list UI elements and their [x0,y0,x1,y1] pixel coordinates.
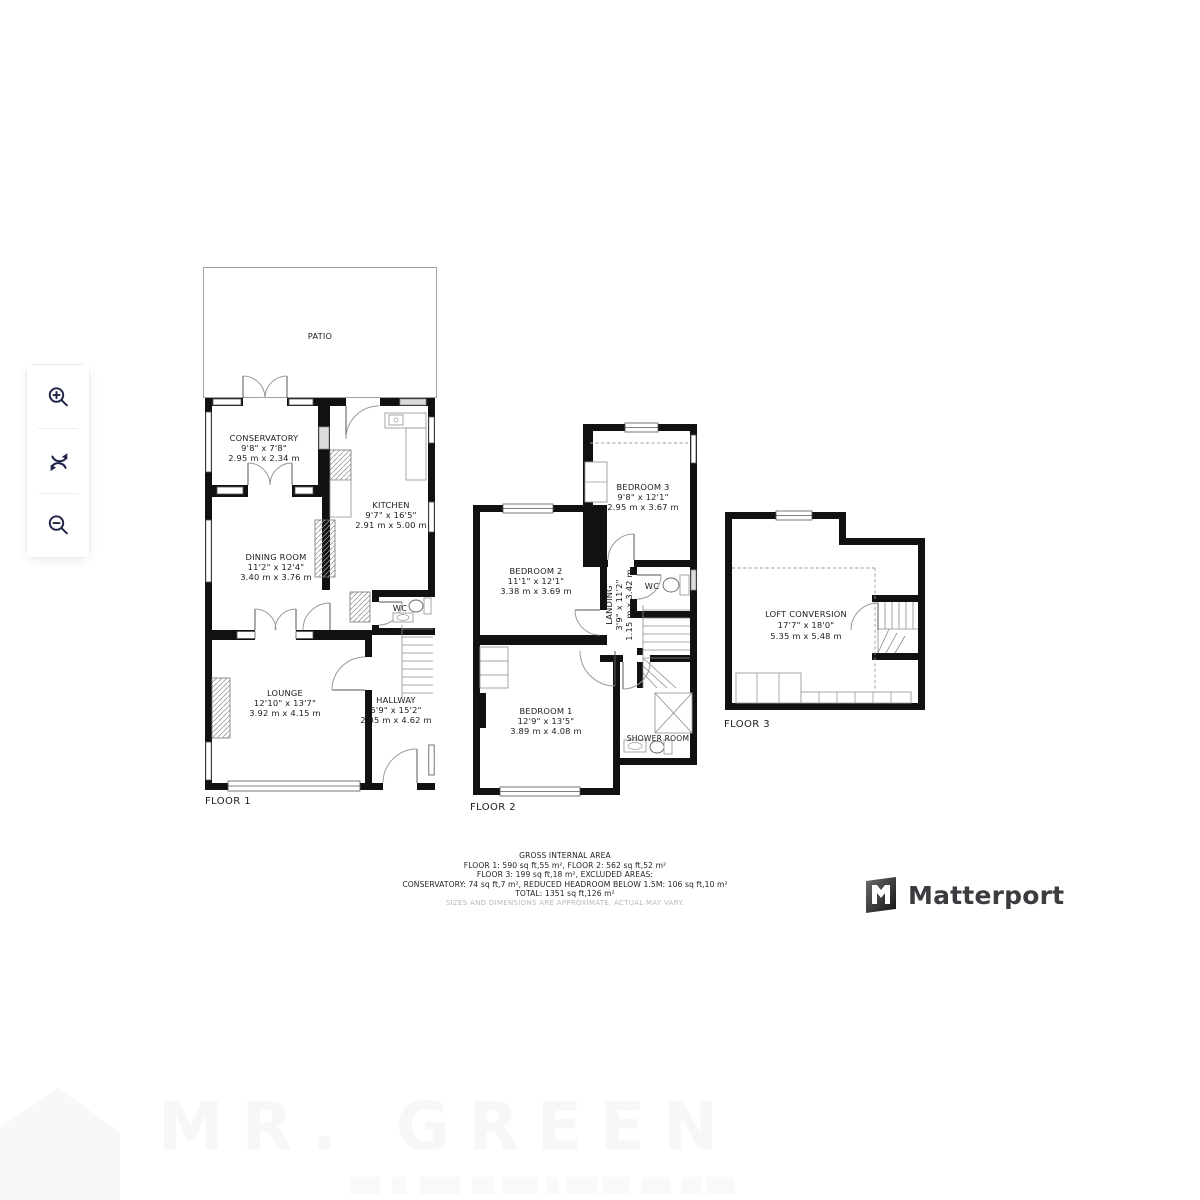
svg-text:9'8" x 12'1": 9'8" x 12'1" [617,492,668,502]
svg-text:BEDROOM 3: BEDROOM 3 [616,482,669,492]
floor-plan-2: BEDROOM 3 9'8" x 12'1" 2.95 m x 3.67 m B… [471,420,700,802]
svg-text:1.15 m x 3.42 m: 1.15 m x 3.42 m [624,569,634,641]
svg-text:2.91 m x 5.00 m: 2.91 m x 5.00 m [355,520,427,530]
svg-text:11'2" x 12'4": 11'2" x 12'4" [248,562,305,572]
svg-text:CONSERVATORY: CONSERVATORY [230,433,300,443]
summary-line-3: CONSERVATORY: 74 sq ft,7 m², REDUCED HEA… [340,880,790,890]
svg-text:DINING ROOM: DINING ROOM [246,552,307,562]
svg-text:3.40 m x 3.76 m: 3.40 m x 3.76 m [240,572,312,582]
svg-text:LOFT CONVERSION: LOFT CONVERSION [765,609,847,619]
svg-text:3.92 m x 4.15 m: 3.92 m x 4.15 m [249,708,321,718]
svg-text:SHOWER ROOM: SHOWER ROOM [627,734,690,743]
floor-3-label: FLOOR 3 [724,719,770,730]
summary-title: GROSS INTERNAL AREA [340,851,790,861]
svg-text:LOUNGE: LOUNGE [267,688,303,698]
svg-text:12'9" x 13'5": 12'9" x 13'5" [518,716,575,726]
floor-2-label: FLOOR 2 [470,802,516,813]
zoom-in-button[interactable] [27,365,89,428]
zoom-controls [26,364,90,558]
floor-plan-3: LOFT CONVERSION 17'7" x 18'0" 5.35 m x 5… [723,505,928,717]
svg-text:WC: WC [645,581,659,591]
room-labels: LOFT CONVERSION 17'7" x 18'0" 5.35 m x 5… [765,609,847,641]
svg-text:17'7" x 18'0": 17'7" x 18'0" [778,620,835,630]
summary-disclaimer: SIZES AND DIMENSIONS ARE APPROXIMATE, AC… [340,899,790,909]
floor-plan-1: PATIO [203,267,439,794]
room-label: PATIO [308,331,333,341]
svg-text:HALLWAY: HALLWAY [376,695,416,705]
svg-text:9'7" x 16'5": 9'7" x 16'5" [365,510,416,520]
zoom-out-button[interactable] [27,494,89,557]
summary-line-2: FLOOR 3: 199 sq ft,18 m², EXCLUDED AREAS… [340,870,790,880]
svg-text:WC: WC [393,603,407,613]
zoom-in-icon [45,384,71,410]
floor-1-label: FLOOR 1 [205,796,251,807]
svg-text:BEDROOM 1: BEDROOM 1 [519,706,572,716]
svg-text:2.95 m x 2.34 m: 2.95 m x 2.34 m [228,453,300,463]
zoom-out-icon [45,512,71,538]
summary-line-1: FLOOR 1: 590 sq ft,55 m², FLOOR 2: 562 s… [340,861,790,871]
rotate-button[interactable] [27,429,89,492]
svg-text:KITCHEN: KITCHEN [372,500,409,510]
matterport-logo: Matterport [863,876,1064,914]
rotate-icon [45,448,71,474]
svg-text:LANDING: LANDING [604,585,614,625]
svg-text:2.05 m x 4.62 m: 2.05 m x 4.62 m [360,715,432,725]
svg-text:BEDROOM 2: BEDROOM 2 [509,566,562,576]
floorplan-page: MR. GREEN [0,0,1200,1200]
matterport-wordmark: Matterport [908,881,1064,910]
matterport-mark-icon [863,876,899,914]
svg-text:9'8" x 7'8": 9'8" x 7'8" [241,443,287,453]
svg-text:3.38 m x 3.69 m: 3.38 m x 3.69 m [500,586,572,596]
patio-area: PATIO [204,268,437,398]
svg-text:12'10" x 13'7": 12'10" x 13'7" [254,698,316,708]
watermark-house-logo [0,1085,130,1200]
svg-text:3'9" x 11'2": 3'9" x 11'2" [614,579,624,630]
area-summary: GROSS INTERNAL AREA FLOOR 1: 590 sq ft,5… [340,851,790,909]
svg-text:6'9" x 15'2": 6'9" x 15'2" [370,705,421,715]
svg-text:5.35 m x 5.48 m: 5.35 m x 5.48 m [770,631,842,641]
summary-line-4: TOTAL: 1351 sq ft,126 m² [340,889,790,899]
windows [776,511,812,520]
svg-text:2.95 m x 3.67 m: 2.95 m x 3.67 m [607,502,679,512]
svg-text:11'1" x 12'1": 11'1" x 12'1" [508,576,565,586]
watermark-text: MR. GREEN [158,1088,736,1165]
svg-text:3.89 m x 4.08 m: 3.89 m x 4.08 m [510,726,582,736]
